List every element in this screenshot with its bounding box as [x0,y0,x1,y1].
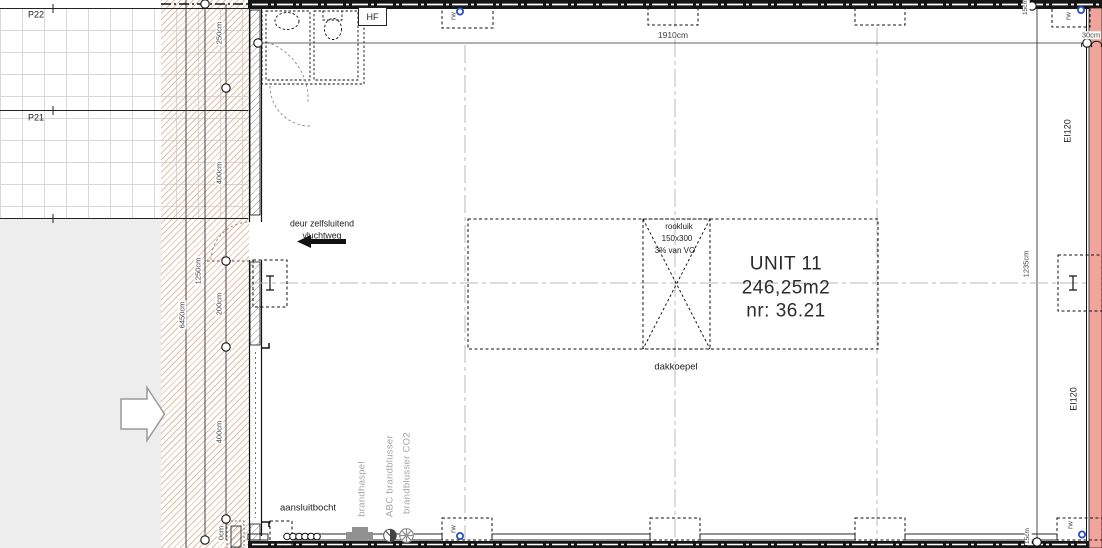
centerlines [250,9,1087,540]
dim-200cm: 200cm [215,292,223,317]
rookluik-percentage-label: 3% van VO [655,247,695,255]
rw-label-top-right: rw [1064,12,1072,20]
toilet-icon [325,19,342,40]
abc-brandblusser-label: ABC brandblusser [385,435,395,517]
dim-6450cm: 6450cm [178,301,186,330]
firewall-thickness-dimension: 30cm [1081,31,1101,39]
firewall-ei120-label-top: EI120 [1064,119,1073,143]
firewall-ei120-label-bottom: EI120 [1070,387,1079,411]
dim-400cm-upper: 400cm [215,161,223,186]
parking-space-p22-label: P22 [28,11,44,20]
unit-name: UNIT 11 [750,255,823,274]
dim-1250cm: 1250cm [194,257,202,286]
parking-space-p21-label: P21 [28,114,44,123]
entrance-arrow-icon [121,388,165,441]
sanitary-rooms [262,8,364,84]
aansluitbocht-label: aansluitbocht [280,503,336,513]
hf-box: HF [358,7,387,26]
top-width-dimension: 1910cm [657,31,689,40]
coil-icon [284,533,321,540]
dim-0cm: 0cm [217,525,225,541]
escape-door-note-line1: deur zelfsluitend [290,220,354,229]
rw-label-bottom-left: rw [449,525,457,533]
dim-250cm: 250cm [215,21,223,46]
plan-linework [0,0,1102,548]
grid-node-circles [201,0,1091,546]
rookluik-label: rookluik [665,223,693,231]
dakkoepel-label: dakkoepel [654,362,697,372]
left-dimension-lines [186,0,226,548]
unit-number: nr: 36.21 [746,302,826,321]
opening-boxes [253,7,1102,547]
hose-reel-icon [346,527,373,539]
co2-extinguisher-icon [400,529,414,543]
floor-plan: P22 P21 HF 1910cm 30cm 15cm 15cm 250cm 4… [0,0,1102,548]
sink-icon [275,13,299,30]
top-dimension-line [258,41,1102,47]
bottom-offset-dimension: 15cm [1025,527,1032,545]
dim-400cm-lower: 400cm [215,420,223,445]
top-offset-dimension: 15cm [1023,0,1030,16]
brandhaspel-label: brandhaspel [357,461,367,517]
hf-label: HF [367,12,379,22]
rw-label-top-left: rw [449,12,457,20]
toilet-tank-icon [323,11,342,20]
abc-extinguisher-icon [384,529,397,542]
co2-brandblusser-label: brandblusser CO2 [402,432,412,514]
walls [161,0,1102,548]
rw-label-bottom-right: rw [1066,521,1074,529]
rookluik-size-label: 150x300 [662,235,693,243]
unit-area: 246,25m2 [742,279,831,298]
dim-1235cm: 1235cm [1022,250,1030,279]
escape-door-note-line2: vluchtweg [302,232,341,241]
